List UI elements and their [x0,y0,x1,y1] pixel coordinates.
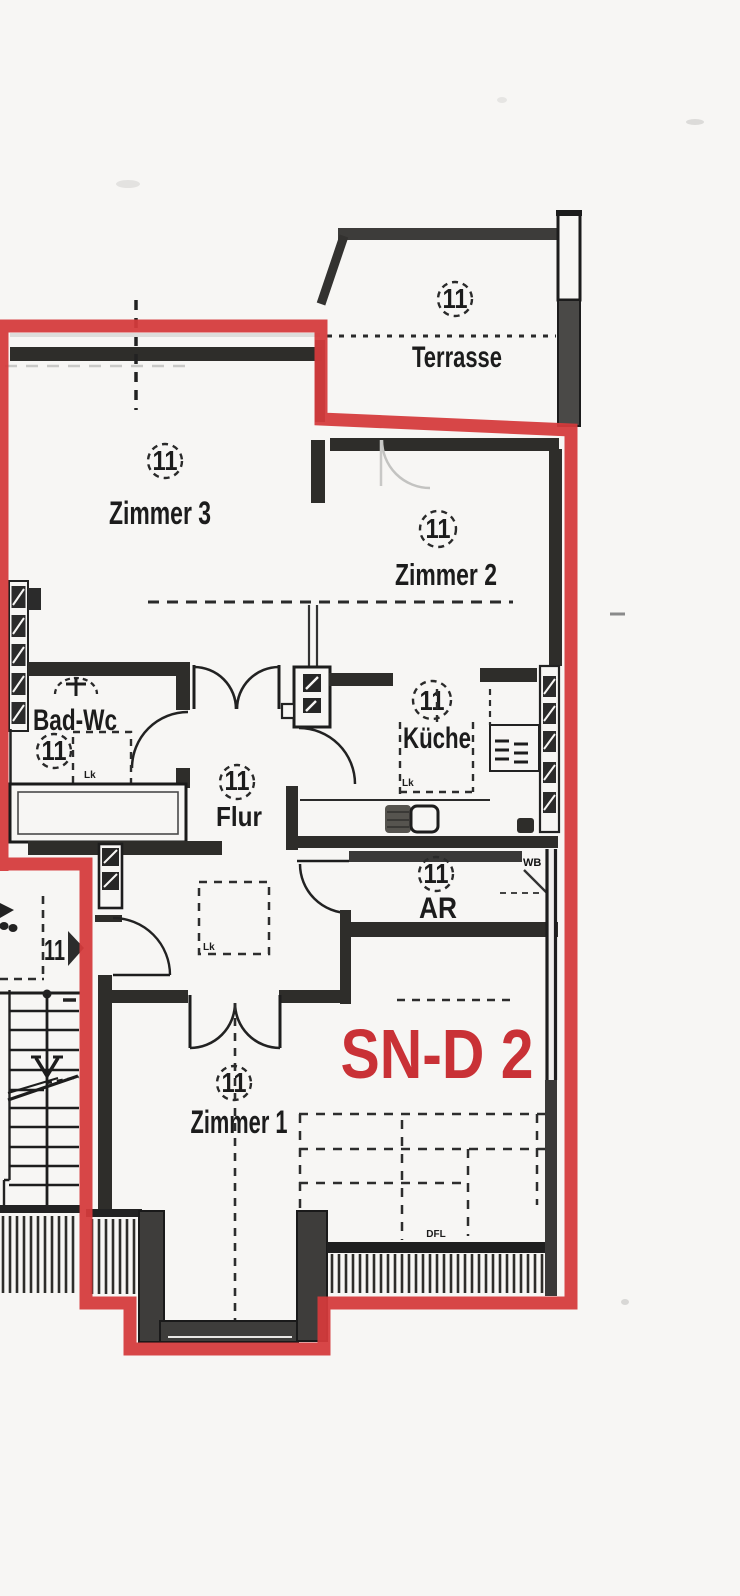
svg-text:11: 11 [443,283,468,314]
svg-text:11: 11 [420,685,445,716]
svg-text:11: 11 [153,445,178,476]
svg-text:SN-D 2: SN-D 2 [341,1015,534,1093]
svg-text:Küche: Küche [403,722,471,755]
svg-text:DFL: DFL [426,1229,445,1240]
svg-text:Zimmer 1: Zimmer 1 [191,1104,288,1140]
svg-text:AR: AR [419,892,457,925]
svg-text:Terrasse: Terrasse [412,341,502,374]
svg-text:Lk: Lk [203,942,215,953]
svg-text:Lk: Lk [402,778,414,789]
svg-text:Flur: Flur [216,801,262,832]
svg-text:11: 11 [426,513,451,544]
svg-text:11: 11 [44,935,65,967]
svg-text:11: 11 [42,735,67,766]
svg-text:Zimmer 2: Zimmer 2 [395,557,497,592]
svg-text:Zimmer 3: Zimmer 3 [109,495,211,531]
svg-text:WB: WB [523,857,541,869]
svg-text:Lk: Lk [84,770,96,781]
svg-text:11: 11 [225,765,250,796]
svg-text:11: 11 [424,858,449,889]
svg-text:11: 11 [222,1067,247,1098]
